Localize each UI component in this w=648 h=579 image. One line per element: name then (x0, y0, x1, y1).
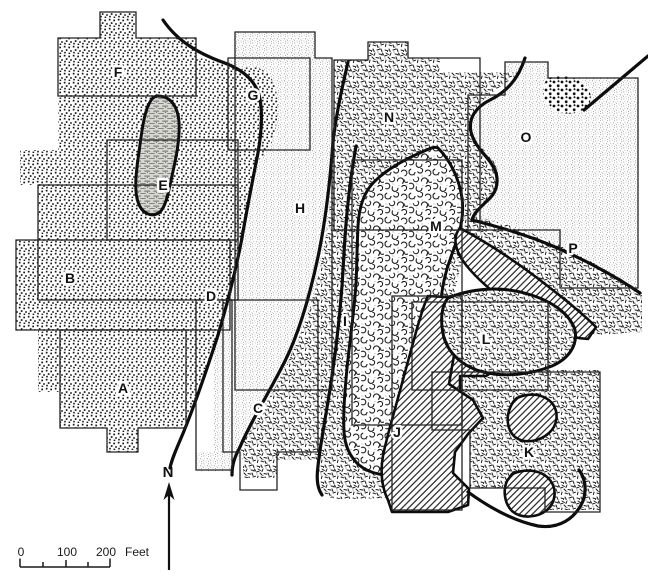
scale-bar: 0 100 200 Feet (18, 545, 150, 567)
region-label-d: D (206, 288, 216, 304)
hatch-lobe-k-lower (505, 471, 555, 517)
scale-tick-label-100: 100 (57, 545, 77, 559)
north-arrow-icon: N (163, 464, 175, 570)
site-map-page: A B C D E F G H I J K L M N O P N 0 100 … (0, 0, 648, 579)
site-map-canvas: A B C D E F G H I J K L M N O P N 0 100 … (0, 0, 648, 579)
region-label-i: I (343, 313, 347, 329)
region-label-p: P (568, 240, 577, 256)
zone-fills (16, 12, 642, 517)
scale-bar-ruler (20, 559, 110, 568)
region-label-j: J (393, 424, 401, 440)
region-label-k: K (524, 444, 534, 460)
region-label-e: E (158, 177, 167, 193)
region-label-b: B (65, 270, 75, 286)
region-label-f: F (114, 64, 123, 80)
scale-tick-label-200: 200 (96, 545, 116, 559)
scale-unit-label: Feet (125, 545, 150, 559)
scale-tick-label-0: 0 (18, 545, 25, 559)
region-label-l: L (482, 331, 491, 347)
region-label-h: H (295, 200, 305, 216)
region-label-m: M (430, 218, 442, 234)
region-label-o: O (521, 129, 532, 145)
region-label-a: A (118, 380, 128, 396)
hatch-lobe-k-upper (508, 395, 557, 442)
region-label-c: C (253, 400, 263, 416)
region-label-n: N (384, 109, 394, 125)
region-label-g: G (248, 87, 259, 103)
north-label: N (163, 464, 174, 481)
